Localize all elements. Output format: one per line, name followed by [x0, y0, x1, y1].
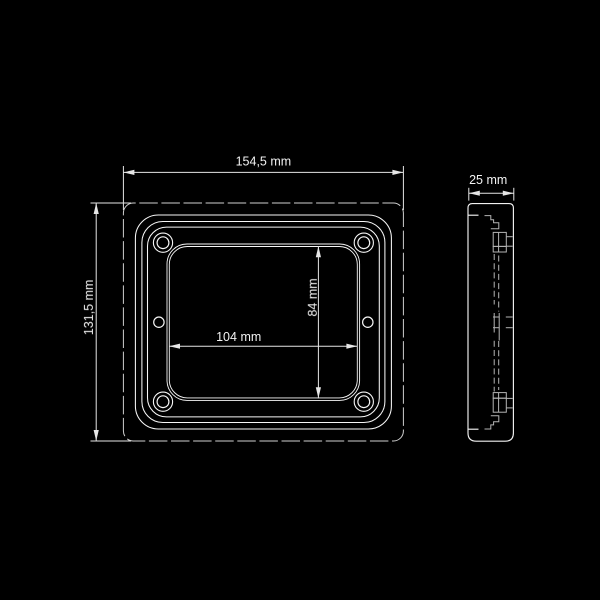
svg-text:84 mm: 84 mm — [306, 278, 320, 316]
svg-text:25 mm: 25 mm — [469, 173, 507, 187]
svg-text:154,5 mm: 154,5 mm — [236, 155, 292, 169]
svg-text:104 mm: 104 mm — [216, 330, 261, 344]
svg-text:131,5 mm: 131,5 mm — [82, 280, 96, 336]
